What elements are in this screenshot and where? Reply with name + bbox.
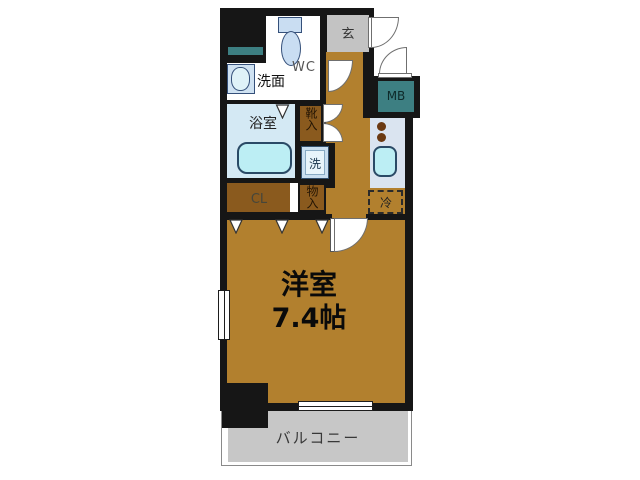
burner-icon xyxy=(377,122,386,131)
meter-box-label: MB xyxy=(387,89,406,103)
closet-door-mark xyxy=(229,219,243,234)
kitchen-sink-icon xyxy=(373,146,397,177)
room-name: 洋室 xyxy=(272,268,347,302)
room-size: 7.4帖 xyxy=(272,302,347,336)
meter-door-leaf xyxy=(378,73,412,78)
storage-door-mark xyxy=(315,219,329,234)
floor-plan: 玄 WC 洗面 浴室 靴入 洗 物入 CL MB 冷 洋室 7.4帖 バルコニー xyxy=(0,0,640,480)
bathroom-label: 浴室 xyxy=(249,113,277,133)
pillar xyxy=(222,383,268,428)
fridge-label: 冷 xyxy=(380,194,392,211)
washroom-label: 洗面 xyxy=(257,71,285,91)
wc-label: WC xyxy=(292,60,316,75)
vent-bar xyxy=(228,47,263,55)
sink-bowl-icon xyxy=(231,67,250,91)
closet-door-mark xyxy=(275,219,289,234)
hallway-washer-level xyxy=(335,143,370,188)
window-bottom xyxy=(298,401,373,411)
closet-label: CL xyxy=(251,192,267,207)
closet-divider xyxy=(290,183,298,212)
main-room-label: 洋室 7.4帖 xyxy=(272,268,347,336)
bath-door-mark xyxy=(275,104,290,119)
window-left xyxy=(218,290,230,340)
balcony-label: バルコニー xyxy=(276,427,361,448)
washer-label: 洗 xyxy=(309,155,321,172)
shoe-cabinet-label: 靴入 xyxy=(303,107,320,131)
storage-label: 物入 xyxy=(304,185,321,209)
bathtub-icon xyxy=(237,142,292,174)
entrance-label: 玄 xyxy=(341,23,354,42)
burner-icon xyxy=(377,133,386,142)
